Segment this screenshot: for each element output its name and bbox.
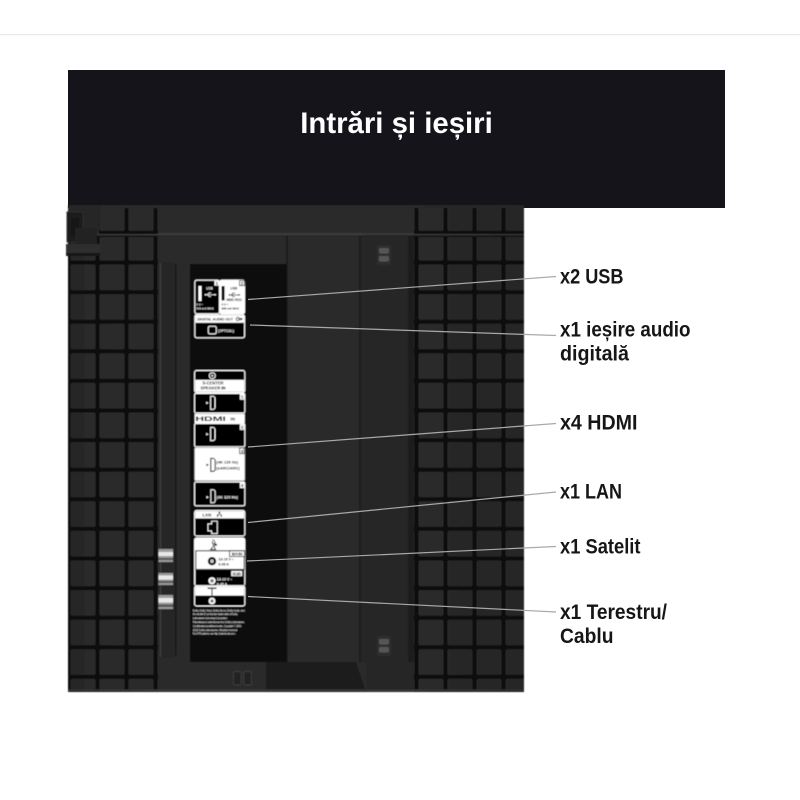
svg-text:x4 HDMI: x4 HDMI — [560, 412, 638, 435]
svg-text:Intrări și ieșiri: Intrări și ieșiri — [300, 107, 493, 140]
svg-text:digitală: digitală — [560, 343, 629, 366]
svg-text:x2 USB: x2 USB — [560, 266, 624, 289]
svg-text:x1 LAN: x1 LAN — [560, 481, 622, 504]
svg-text:Cablu: Cablu — [560, 625, 614, 648]
svg-text:x1 Terestru/: x1 Terestru/ — [560, 601, 667, 624]
svg-text:x1 Satelit: x1 Satelit — [560, 536, 641, 559]
svg-text:x1 ieșire audio: x1 ieșire audio — [560, 319, 691, 342]
